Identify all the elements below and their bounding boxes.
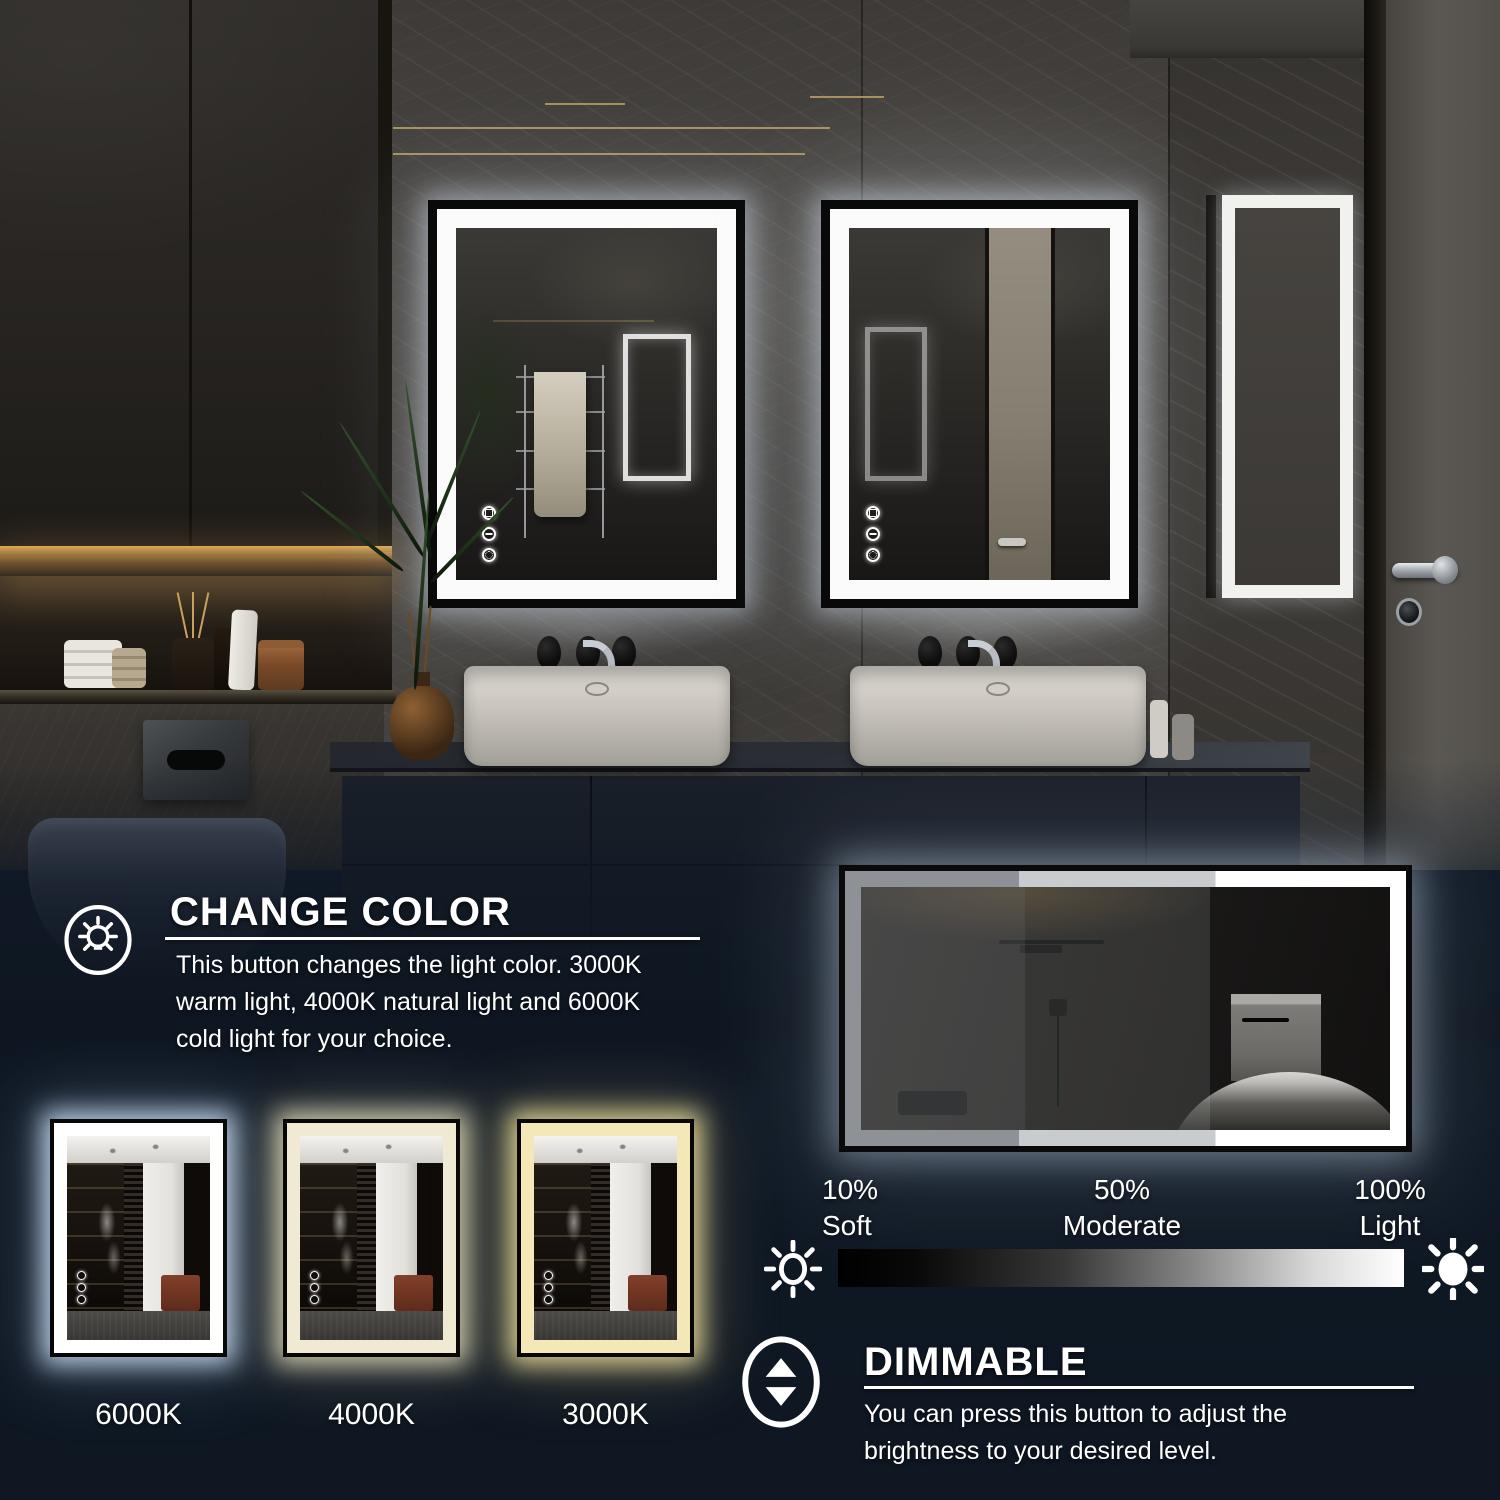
sun-outline-icon <box>764 1240 822 1298</box>
mirror-glass <box>861 887 1390 1130</box>
reed-diffuser-bottle <box>172 638 214 690</box>
sun-filled-icon <box>1422 1238 1484 1300</box>
dimmable-mirror-demo <box>839 865 1412 1152</box>
touch-button-icon <box>544 1295 553 1304</box>
ceiling-strip <box>1130 0 1372 58</box>
palm-leaf <box>422 411 482 552</box>
led-mirror-product-infographic: CHANGE COLOR This button changes the lig… <box>0 0 1500 1500</box>
brightness-level-10: 10% Soft <box>822 1172 878 1244</box>
closet-ceiling <box>67 1136 210 1163</box>
palm-stem <box>413 490 431 690</box>
faucet-handle <box>537 636 561 670</box>
closet-slat-panel <box>124 1163 143 1312</box>
brightness-percent: 10% <box>822 1172 878 1208</box>
touch-button-icon <box>77 1271 86 1280</box>
touch-button-icon <box>544 1271 553 1280</box>
gold-inlay-line <box>545 103 625 105</box>
rolled-towel <box>112 648 146 688</box>
diffuser-reed <box>192 592 194 644</box>
dimmable-title: DIMMABLE <box>864 1340 1088 1384</box>
temp-label-4000k: 4000K <box>283 1398 460 1432</box>
amber-jar <box>258 640 304 690</box>
brightness-percent: 50% <box>1022 1172 1222 1208</box>
mirror-reflection-glow <box>865 327 928 482</box>
faucet-handle <box>612 636 636 670</box>
door-reflection <box>985 228 1055 580</box>
temp-label-3000k: 3000K <box>517 1398 694 1432</box>
dimmable-description: You can press this button to adjust the … <box>864 1396 1334 1470</box>
closet-slat-panel <box>591 1163 610 1312</box>
led-mirror-partial <box>1222 195 1353 598</box>
gold-inlay-line <box>810 96 884 98</box>
closet-carpet <box>534 1311 677 1340</box>
soap-jar <box>1172 714 1194 760</box>
door-handle-reflection <box>998 538 1027 546</box>
closet-reflection <box>300 1136 443 1340</box>
vessel-sink-left <box>464 666 730 766</box>
brightness-gradient-bar <box>838 1249 1404 1287</box>
lotion-tube <box>228 609 258 690</box>
change-color-title: CHANGE COLOR <box>170 890 511 934</box>
door-handle-rosette <box>1432 556 1458 584</box>
vessel-sink-right <box>850 666 1146 766</box>
led-light-band <box>830 209 1129 599</box>
brightness-word: Moderate <box>1022 1208 1222 1244</box>
touch-button-icon <box>310 1283 319 1292</box>
brightness-adjust-icon <box>738 1336 824 1428</box>
brightness-level-100: 100% Light <box>1290 1172 1490 1244</box>
brightness-level-50: 50% Moderate <box>1022 1172 1222 1244</box>
change-color-underline <box>165 937 700 940</box>
closet-carpet <box>300 1311 443 1340</box>
closet-wardrobe <box>534 1163 591 1312</box>
door-frame <box>1364 0 1386 870</box>
door <box>1386 0 1500 870</box>
palm-plant <box>320 370 500 720</box>
closet-carpet <box>67 1311 210 1340</box>
mirror-preview-4000k <box>283 1119 460 1357</box>
led-band-brightness-steps <box>845 871 1406 1146</box>
mirror-preview-3000k <box>517 1119 694 1357</box>
lightbulb-icon <box>63 903 133 977</box>
brightness-zone-10 <box>861 887 1025 1130</box>
closet-bench <box>628 1275 667 1312</box>
touch-button-icon <box>77 1295 86 1304</box>
mirror-glass <box>849 228 1110 580</box>
brightness-percent: 100% <box>1290 1172 1490 1208</box>
dimmable-underline <box>864 1386 1414 1389</box>
mirror-preview-6000k <box>50 1119 227 1357</box>
marble-block-reflection <box>1231 994 1321 1081</box>
led-mirror-right <box>821 200 1138 608</box>
closet-ceiling <box>300 1136 443 1163</box>
tub-faucet-reflection <box>1242 1018 1290 1022</box>
gold-inlay-line <box>393 153 805 155</box>
gold-inlay-line <box>393 127 830 129</box>
led-band-warm <box>521 1123 690 1353</box>
faucet-handle <box>918 636 942 670</box>
side-mirror-edge <box>1206 195 1216 598</box>
touch-button-icon <box>544 1283 553 1292</box>
touch-controls <box>866 506 880 562</box>
closet-slat-panel <box>357 1163 376 1312</box>
brightness-word: Soft <box>822 1208 878 1244</box>
defog-button-icon <box>866 548 880 562</box>
hanging-towel-reflection <box>534 372 586 516</box>
change-color-description: This button changes the light color. 300… <box>176 947 681 1058</box>
touch-controls <box>310 1271 319 1304</box>
touch-controls <box>77 1271 86 1304</box>
touch-button-icon <box>77 1283 86 1292</box>
closet-ceiling <box>534 1136 677 1163</box>
touch-controls <box>544 1271 553 1304</box>
brightness-zone-50 <box>1025 887 1210 1130</box>
closet-bench <box>161 1275 200 1312</box>
power-button-icon <box>866 527 880 541</box>
mirror-reflection-glow <box>623 334 691 482</box>
cabinet-seam <box>189 0 192 552</box>
closet-wardrobe <box>67 1163 124 1312</box>
closet-wardrobe <box>300 1163 357 1312</box>
touch-button-icon <box>310 1271 319 1280</box>
led-band-natural <box>287 1123 456 1353</box>
temp-label-6000k: 6000K <box>50 1398 227 1432</box>
door-keyhole <box>1396 598 1422 626</box>
closet-reflection <box>67 1136 210 1340</box>
closet-reflection <box>534 1136 677 1340</box>
led-band-cool <box>54 1123 223 1353</box>
touch-button-icon <box>310 1295 319 1304</box>
closet-bench <box>394 1275 433 1312</box>
soap-bottle <box>1150 700 1168 758</box>
light-button-icon <box>866 506 880 520</box>
